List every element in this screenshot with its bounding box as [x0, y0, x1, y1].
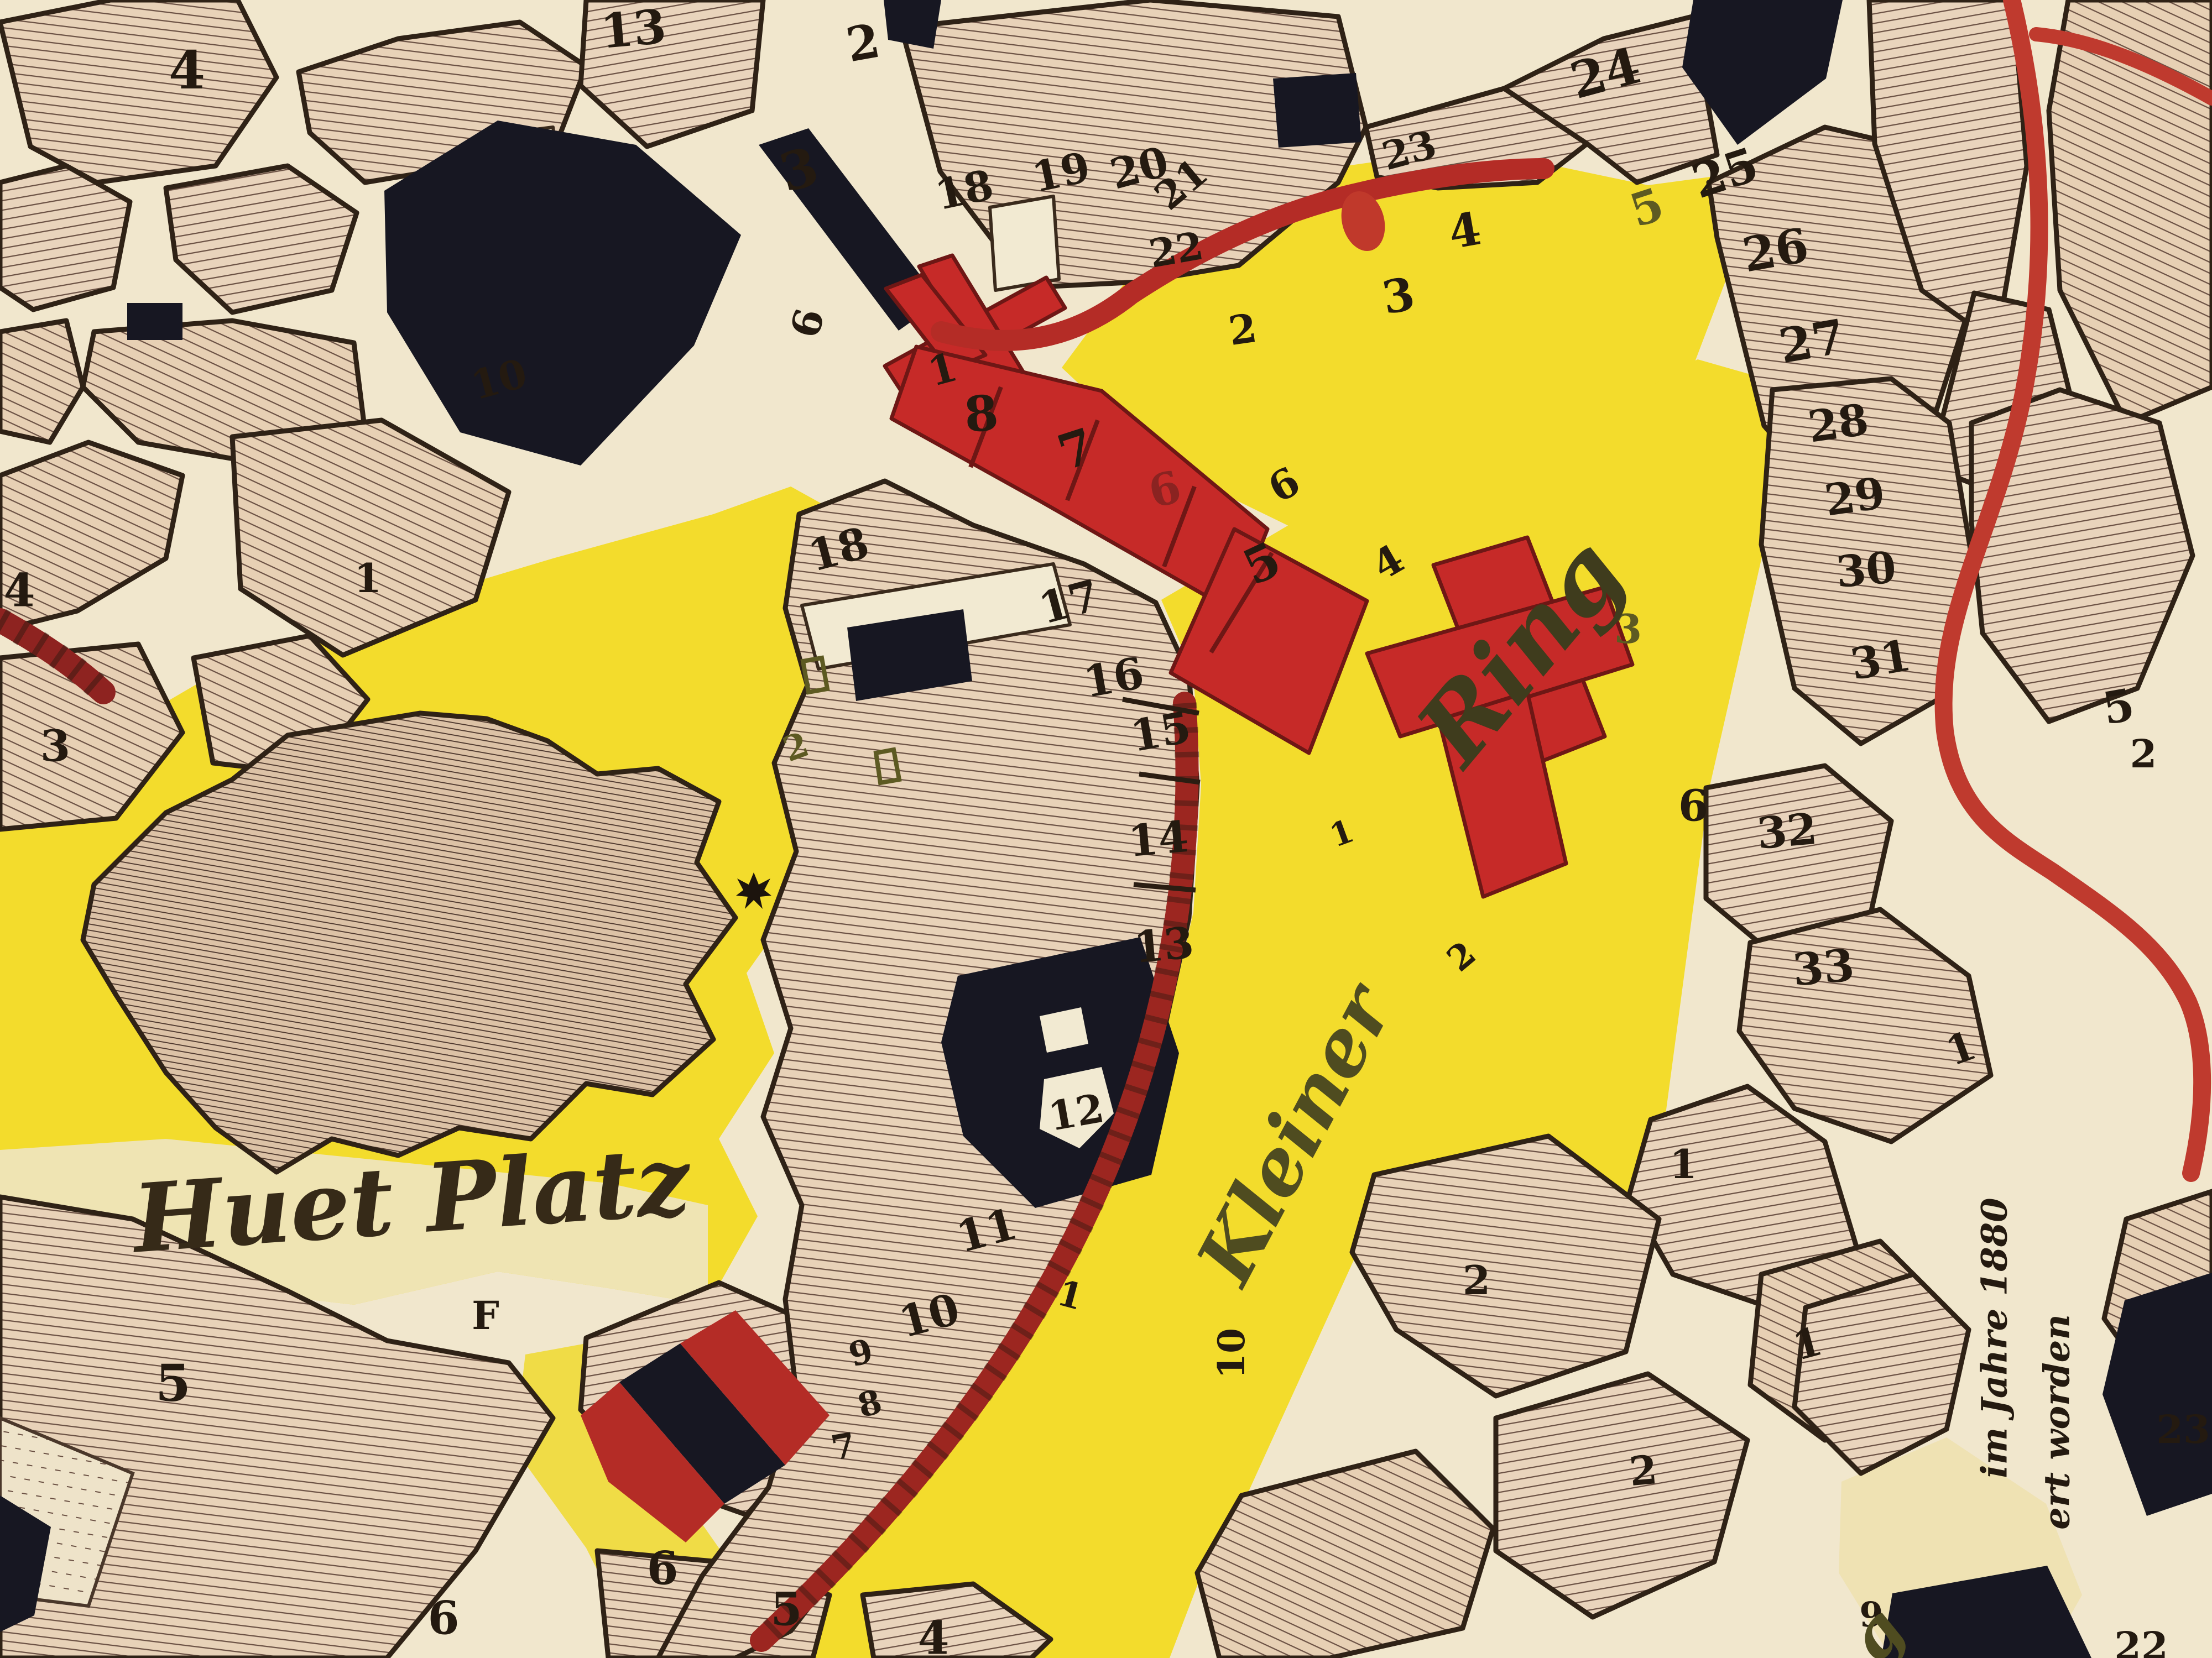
dark-building [127, 303, 182, 340]
plot-number: 4 [917, 1612, 949, 1658]
plot-number: 12 [1045, 1084, 1107, 1140]
map-stage: 1342318192021222324252627282930315232331… [0, 0, 2212, 1658]
plot-number: 22 [1146, 222, 1207, 277]
plot-number: 26 [1739, 218, 1813, 284]
historical-map-canvas: 1342318192021222324252627282930315232331… [0, 0, 2212, 1658]
plot-number: 6 [427, 1592, 459, 1645]
plot-number: 29 [1822, 468, 1888, 526]
plot-number: 27 [1775, 309, 1849, 375]
plot-number: 8 [962, 384, 1000, 444]
plot-number: 2 [1627, 1446, 1659, 1495]
plot-number: 1 [354, 555, 382, 602]
plot-number: 28 [1805, 394, 1871, 452]
label-note-line-1: im Jahre 1880 [1974, 1197, 2016, 1478]
plot-number: 4 [169, 40, 205, 101]
plot-number: 5 [155, 1353, 191, 1413]
plot-number: 2 [2130, 731, 2157, 777]
plot-number: 2 [1463, 1257, 1490, 1304]
plot-number: 15 [1127, 702, 1195, 762]
plot-number: 32 [1755, 804, 1819, 859]
plot-number: 3 [40, 721, 70, 772]
plot-number: 4 [3, 564, 35, 617]
plot-number: 13 [598, 0, 669, 60]
plot-number: 23 [2156, 1406, 2210, 1452]
dark-building [1273, 73, 1361, 148]
plot-number: F [472, 1293, 499, 1338]
plot-number: 14 [1126, 812, 1190, 867]
label-note-line-2: ert worden [2037, 1314, 2078, 1530]
plot-number: 13 [1131, 918, 1196, 973]
plot-number: 33 [1791, 939, 1856, 996]
plot-number: 6 [1678, 781, 1708, 831]
courtyard-patch [990, 196, 1059, 290]
plot-number: 10 [1210, 1328, 1253, 1379]
plot-number: 1 [1670, 1141, 1697, 1188]
plot-number: 22 [2114, 1623, 2168, 1658]
plot-number: 16 [1080, 648, 1148, 708]
plot-number: 31 [1847, 630, 1915, 690]
plot-number: 5 [770, 1583, 802, 1636]
plot-number: 30 [1834, 542, 1898, 598]
plot-number: 6 [646, 1542, 678, 1595]
